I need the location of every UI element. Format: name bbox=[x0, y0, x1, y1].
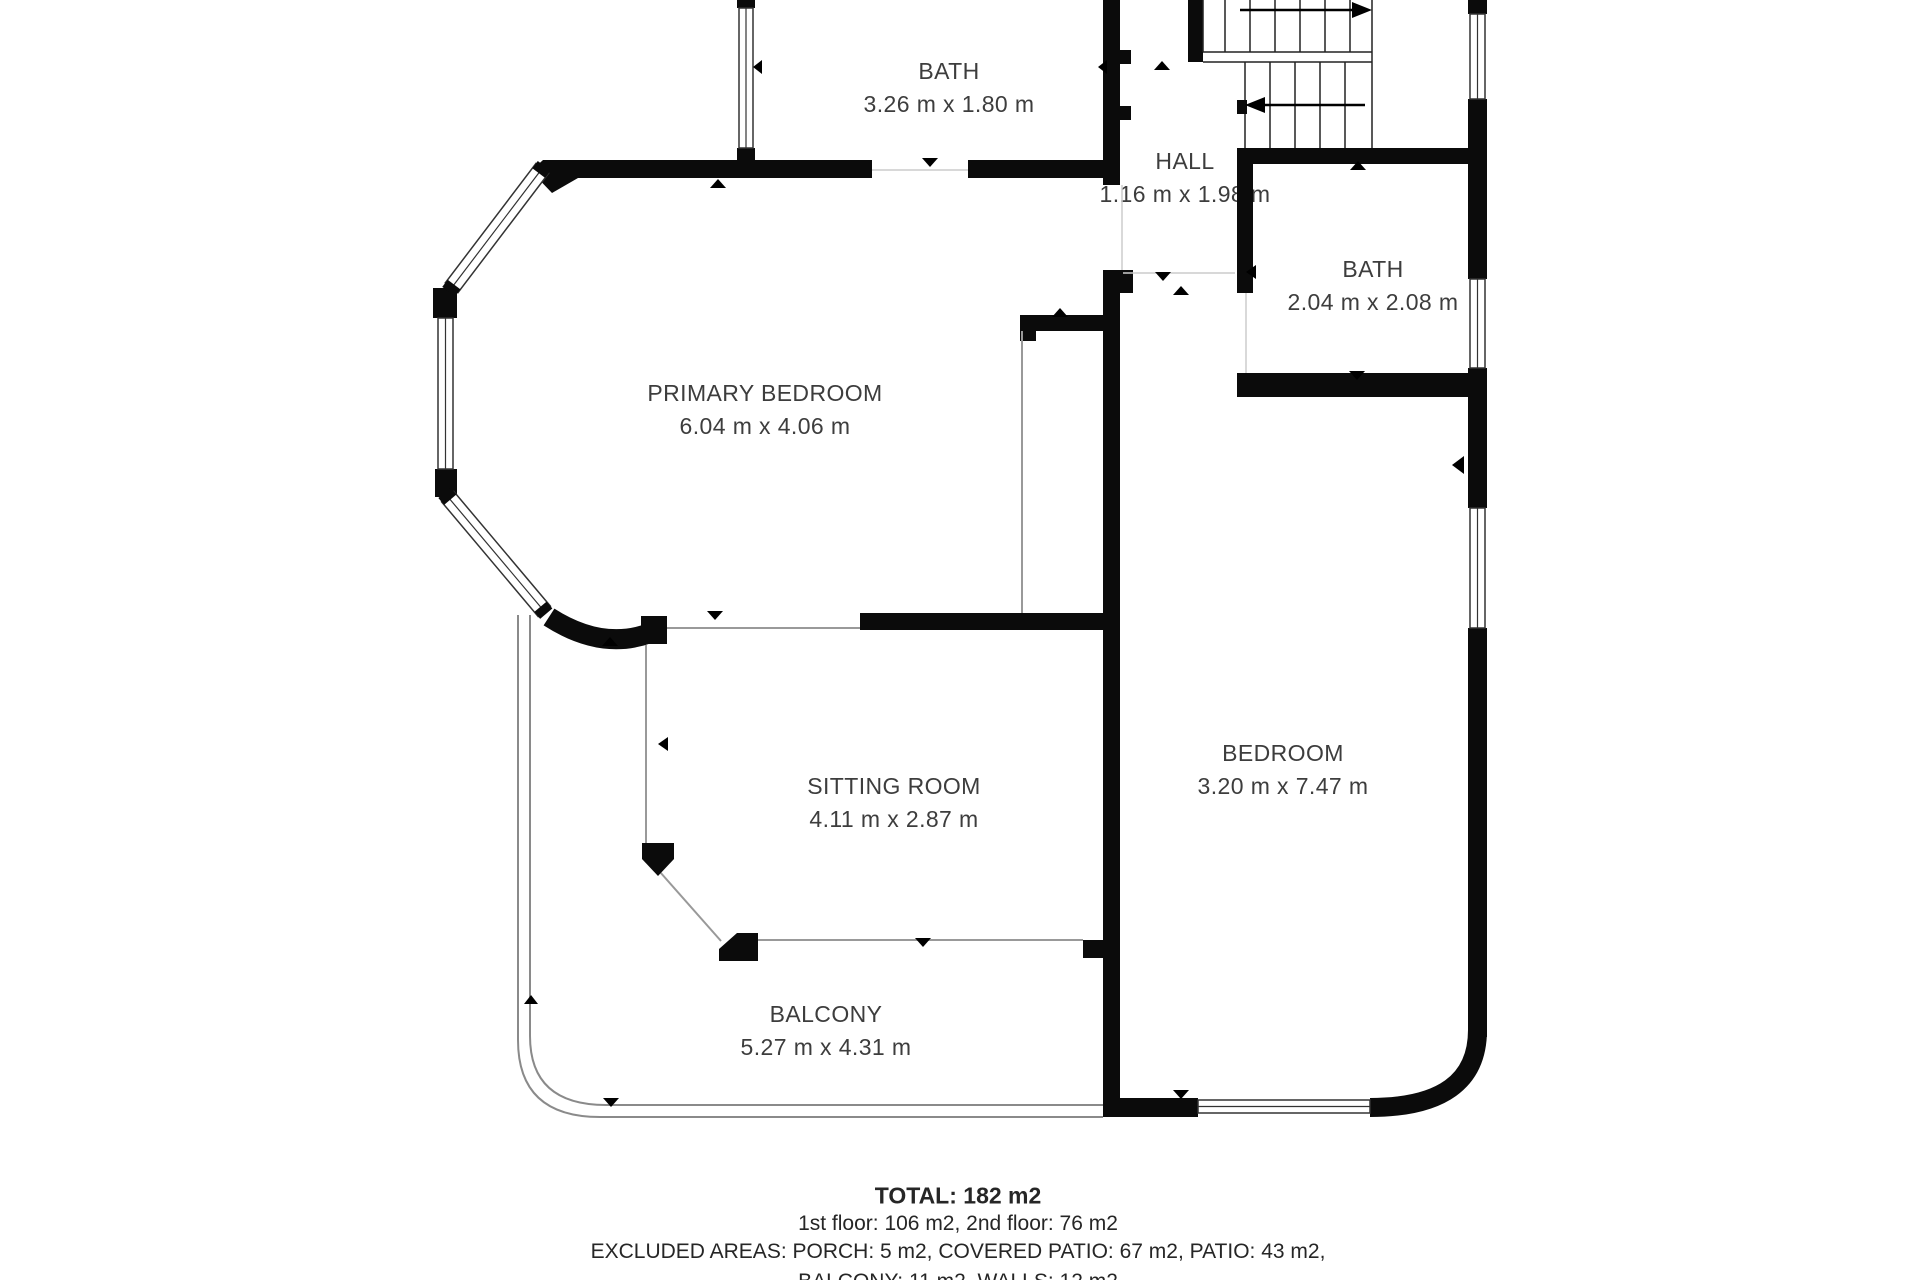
summary-excluded-areas: EXCLUDED AREAS: PORCH: 5 m2, COVERED PAT… bbox=[591, 1240, 1326, 1264]
room-dims: 3.26 m x 1.80 m bbox=[864, 88, 1035, 121]
room-dims: 4.11 m x 2.87 m bbox=[807, 803, 980, 836]
room-label-sitting-room: SITTING ROOM 4.11 m x 2.87 m bbox=[807, 770, 980, 836]
room-name: PRIMARY BEDROOM bbox=[647, 377, 882, 410]
room-label-hall: HALL 1.16 m x 1.98 m bbox=[1100, 145, 1271, 211]
room-dims: 6.04 m x 4.06 m bbox=[647, 410, 882, 443]
room-label-bath-top: BATH 3.26 m x 1.80 m bbox=[864, 55, 1035, 121]
summary-total: TOTAL: 182 m2 bbox=[875, 1183, 1042, 1210]
room-dims: 2.04 m x 2.08 m bbox=[1288, 286, 1459, 319]
room-label-primary-bedroom: PRIMARY BEDROOM 6.04 m x 4.06 m bbox=[647, 377, 882, 443]
room-dims: 1.16 m x 1.98 m bbox=[1100, 178, 1271, 211]
room-label-bath-right: BATH 2.04 m x 2.08 m bbox=[1288, 253, 1459, 319]
room-name: BEDROOM bbox=[1198, 737, 1369, 770]
room-name: BATH bbox=[864, 55, 1035, 88]
room-dims: 3.20 m x 7.47 m bbox=[1198, 770, 1369, 803]
summary-floors: 1st floor: 106 m2, 2nd floor: 76 m2 bbox=[798, 1212, 1118, 1236]
room-name: HALL bbox=[1100, 145, 1271, 178]
room-name: BALCONY bbox=[741, 998, 912, 1031]
floor-plan-page: BATH 3.26 m x 1.80 m HALL 1.16 m x 1.98 … bbox=[0, 0, 1920, 1280]
room-name: BATH bbox=[1288, 253, 1459, 286]
room-labels-layer: BATH 3.26 m x 1.80 m HALL 1.16 m x 1.98 … bbox=[0, 0, 1920, 1280]
room-label-bedroom: BEDROOM 3.20 m x 7.47 m bbox=[1198, 737, 1369, 803]
room-label-balcony: BALCONY 5.27 m x 4.31 m bbox=[741, 998, 912, 1064]
room-name: SITTING ROOM bbox=[807, 770, 980, 803]
room-dims: 5.27 m x 4.31 m bbox=[741, 1031, 912, 1064]
summary-excluded-areas-2: BALCONY: 11 m2, WALLS: 12 m2 bbox=[798, 1270, 1118, 1280]
